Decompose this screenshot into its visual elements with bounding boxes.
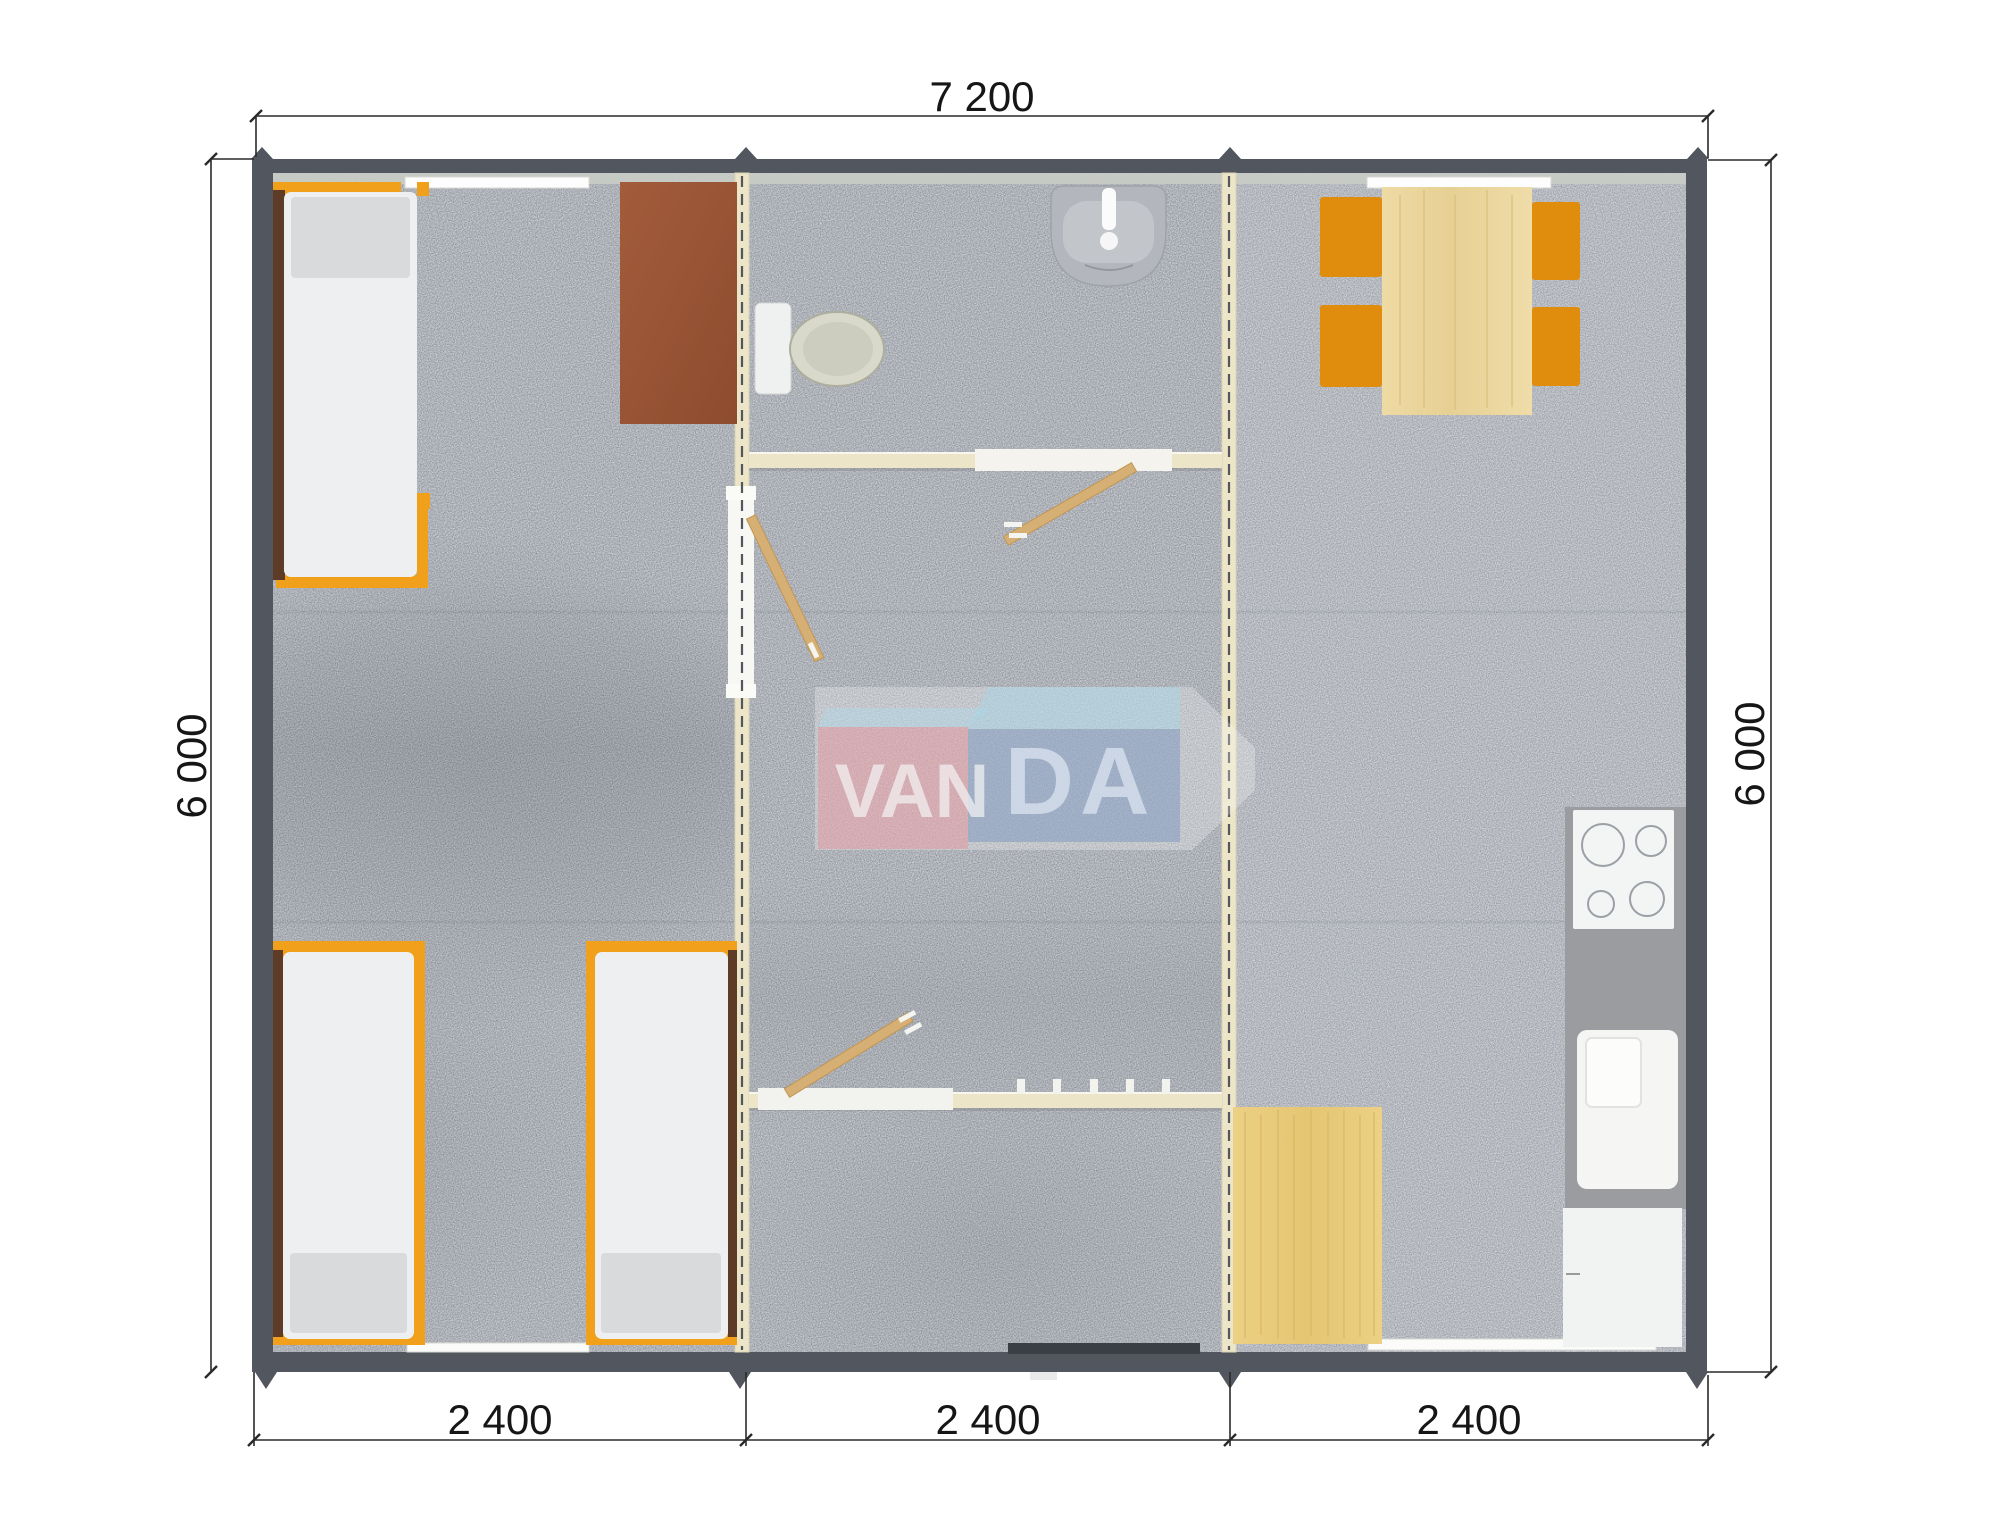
svg-text:7 200: 7 200 <box>929 73 1034 120</box>
svg-text:2 400: 2 400 <box>447 1396 552 1443</box>
svg-text:6 000: 6 000 <box>1726 701 1773 806</box>
svg-text:2 400: 2 400 <box>935 1396 1040 1443</box>
svg-text:DA: DA <box>1005 728 1156 835</box>
svg-text:2 400: 2 400 <box>1416 1396 1521 1443</box>
svg-text:VAN: VAN <box>835 749 990 834</box>
svg-text:6 000: 6 000 <box>168 713 215 818</box>
